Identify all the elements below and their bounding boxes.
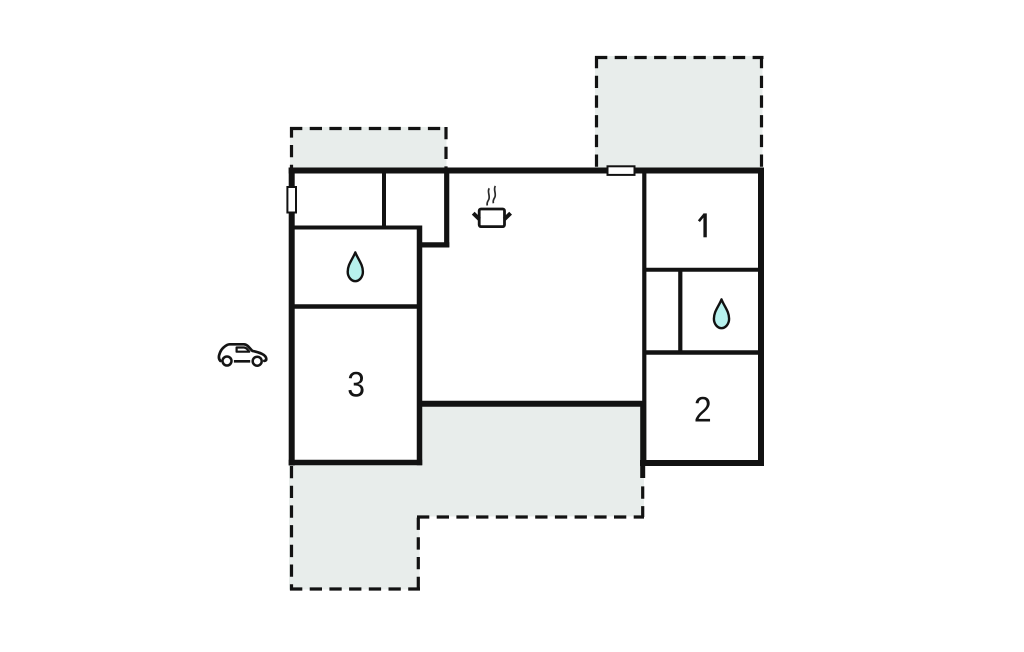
svg-text:3: 3 bbox=[347, 365, 365, 405]
svg-text:2: 2 bbox=[694, 390, 712, 430]
